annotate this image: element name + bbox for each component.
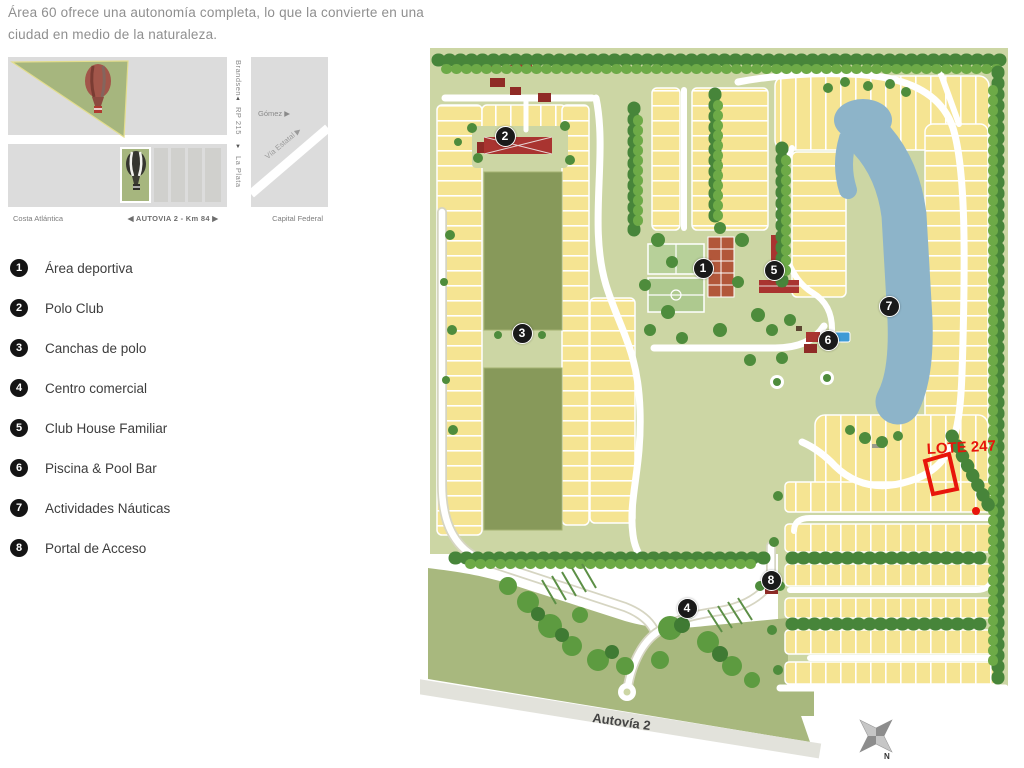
map-marker-7: 7 (879, 296, 900, 317)
master-plan-map: LOTE 247 Autovía 2 N 12345678 (420, 30, 1020, 762)
arrow-left-icon: ◀ (128, 214, 134, 223)
arrow-down-icon: ▼ (235, 144, 241, 150)
legend-item-label: Actividades Náuticas (45, 501, 170, 516)
legend-item-6: 6Piscina & Pool Bar (10, 448, 170, 488)
legend-item-2: 2Polo Club (10, 288, 170, 328)
legend-item-label: Canchas de polo (45, 341, 146, 356)
inset-label-costa: Costa Atlántica (13, 214, 63, 223)
inset-highway-bar: Costa Atlántica ◀ AUTOVIA 2 - Km 84 ▶ Ca… (8, 208, 328, 228)
legend-item-4: 4Centro comercial (10, 368, 170, 408)
legend-number-badge: 5 (10, 419, 28, 437)
intro-text: Área 60 ofrece una autonomía completa, l… (8, 2, 424, 46)
map-marker-1: 1 (693, 258, 714, 279)
map-marker-5: 5 (764, 260, 785, 281)
arrow-right-icon: ▶ (212, 214, 218, 223)
legend-item-5: 5Club House Familiar (10, 408, 170, 448)
legend-number-badge: 1 (10, 259, 28, 277)
map-markers-layer: 12345678 (420, 30, 1020, 762)
legend-number-badge: 3 (10, 339, 28, 357)
legend-item-label: Área deportiva (45, 261, 133, 276)
inset-label-la-plata: La Plata (234, 156, 243, 188)
legend-number-badge: 7 (10, 499, 28, 517)
legend-number-badge: 6 (10, 459, 28, 477)
map-marker-8: 8 (761, 570, 782, 591)
inset-label-rp215: RP 215 (234, 107, 243, 135)
legend-item-label: Polo Club (45, 301, 104, 316)
legend-item-label: Centro comercial (45, 381, 147, 396)
intro-line-2: ciudad en medio de la naturaleza. (8, 24, 424, 46)
legend-number-badge: 2 (10, 299, 28, 317)
legend-item-label: Piscina & Pool Bar (45, 461, 157, 476)
map-marker-4: 4 (677, 598, 698, 619)
legend-item-3: 3Canchas de polo (10, 328, 170, 368)
legend-item-1: 1Área deportiva (10, 248, 170, 288)
legend-item-label: Portal de Acceso (45, 541, 146, 556)
inset-label-side-road: Gómez ▶ (258, 109, 290, 118)
legend-item-label: Club House Familiar (45, 421, 167, 436)
map-marker-6: 6 (818, 330, 839, 351)
legend-list: 1Área deportiva2Polo Club3Canchas de pol… (10, 248, 170, 568)
legend-number-badge: 8 (10, 539, 28, 557)
map-marker-3: 3 (512, 323, 533, 344)
intro-line-1: Área 60 ofrece una autonomía completa, l… (8, 2, 424, 24)
legend-item-8: 8Portal de Acceso (10, 528, 170, 568)
location-inset-map: Brandsen ▲ RP 215 ▼ La Plata Gómez ▶ Vía… (8, 57, 328, 229)
inset-label-autovia: ◀ AUTOVIA 2 - Km 84 ▶ (103, 214, 243, 223)
inset-label-capital: Capital Federal (272, 214, 323, 223)
map-marker-2: 2 (495, 126, 516, 147)
inset-label-brandsen: Brandsen (234, 60, 243, 96)
legend-number-badge: 4 (10, 379, 28, 397)
arrow-up-icon: ▲ (235, 96, 241, 102)
legend-item-7: 7Actividades Náuticas (10, 488, 170, 528)
